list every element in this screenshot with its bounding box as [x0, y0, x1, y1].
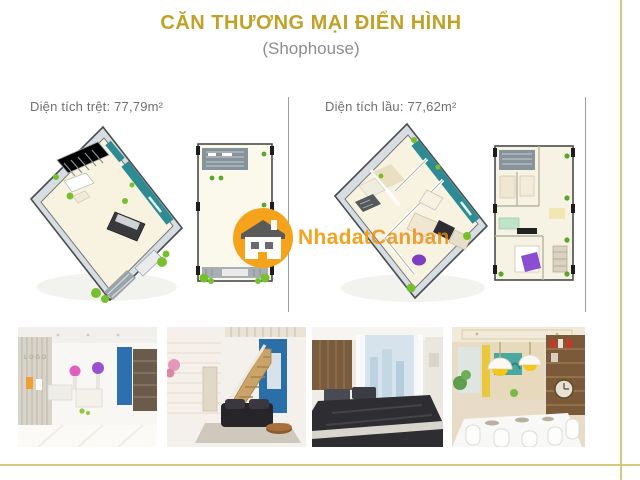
section-divider-right	[585, 97, 586, 312]
shop-wall-text: LOGO	[24, 355, 48, 361]
brand-second: Canban	[371, 226, 450, 249]
photo-bedroom	[312, 327, 443, 447]
page-title: CĂN THƯƠNG MẠI ĐIỂN HÌNH	[0, 12, 622, 35]
area-label-ground-floor: Diện tích trệt: 77,79m²	[30, 99, 163, 114]
photo-living-room	[167, 327, 306, 447]
photo-shop-interior	[18, 327, 157, 447]
brochure-page: CĂN THƯƠNG MẠI ĐIỂN HÌNH (Shophouse) Diệ…	[0, 0, 640, 480]
upper-floor-3d-plan	[315, 118, 495, 313]
ground-floor-3d-plan	[12, 122, 187, 312]
watermark-logo	[231, 206, 295, 270]
purple-chair	[412, 255, 426, 266]
upper-floor-2d-plan	[487, 128, 583, 293]
area-label-upper-floor: Diện tích lầu: 77,62m²	[325, 99, 457, 114]
frame-line-horizontal	[0, 464, 640, 466]
page-subtitle: (Shophouse)	[0, 39, 622, 59]
photo-dining-room	[452, 327, 585, 447]
section-divider-left	[288, 97, 289, 312]
house-icon	[231, 206, 295, 270]
watermark-brand-text: NhadatCanban	[298, 226, 450, 250]
frame-line-vertical	[620, 0, 622, 480]
brand-first: Nhadat	[298, 226, 371, 249]
